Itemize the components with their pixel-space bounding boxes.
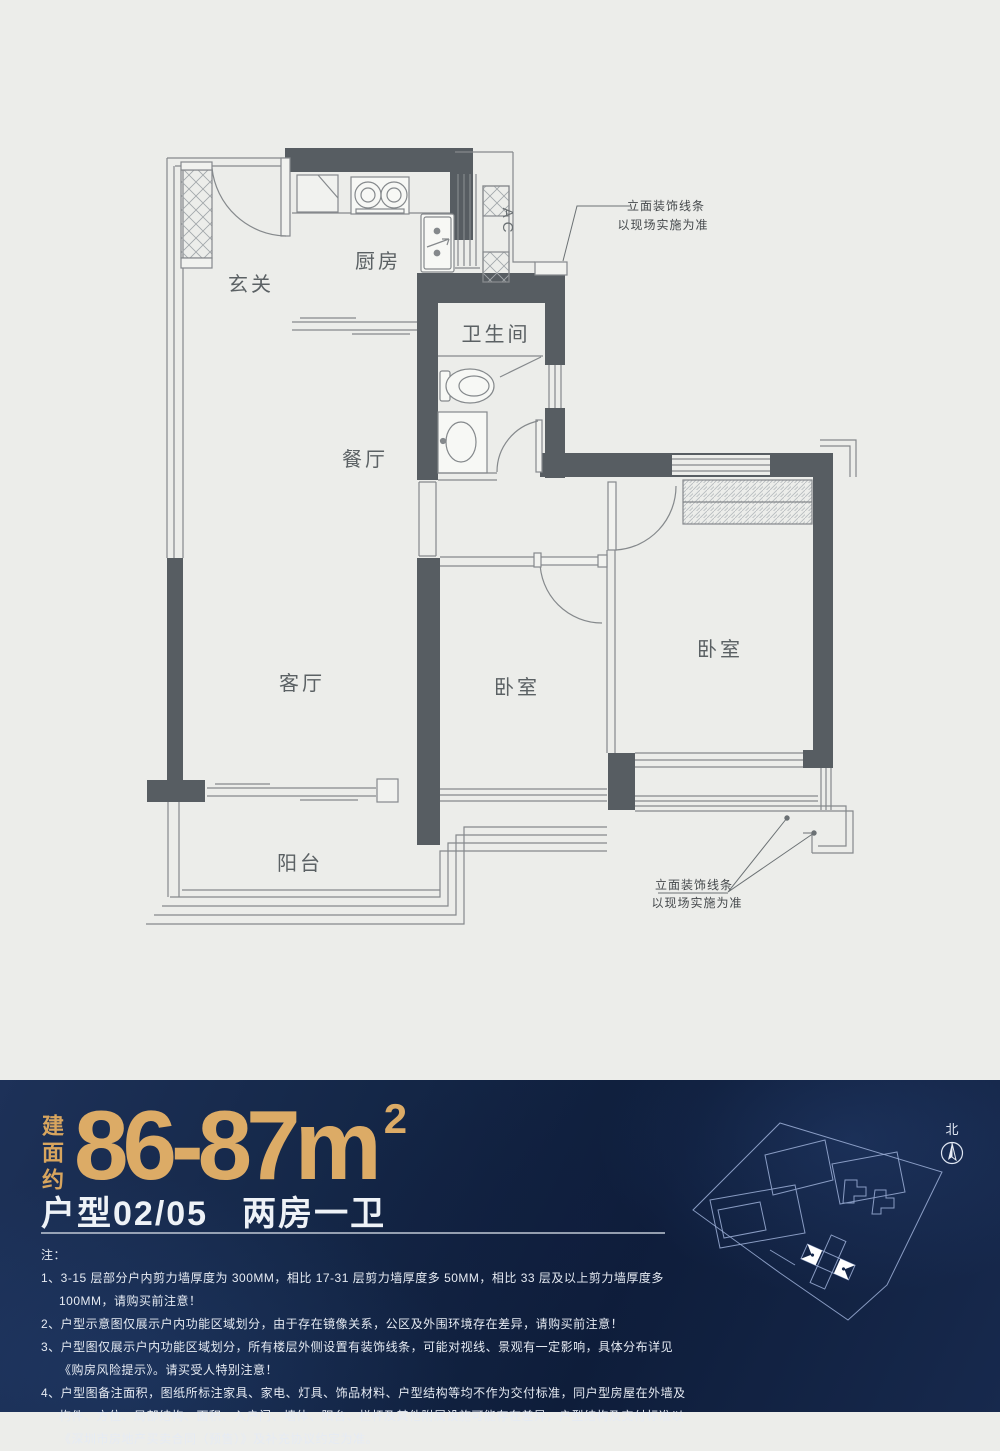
note-item-1: 1、3-15 层部分户内剪力墙厚度为 300MM，相比 17-31 层剪力墙厚度… xyxy=(41,1267,696,1313)
site-plan: 北 xyxy=(680,1098,980,1358)
north-indicator: 北 xyxy=(942,1122,963,1164)
note-item-2: 2、户型示意图仅展示户内功能区域划分，由于存在镜像关系，公区及外围环境存在差异，… xyxy=(41,1313,696,1336)
north-label: 北 xyxy=(945,1122,958,1137)
area-prefix-label: 建面约 xyxy=(40,1114,62,1195)
info-panel: 建面约 86-87m2 户型02/05两房一卫 注： 1、3-15 层部分户内剪… xyxy=(0,1080,1000,1412)
area-value: 86-87m2 xyxy=(74,1096,399,1194)
note-item-3: 3、户型图仅展示户内功能区域划分，所有楼层外侧设置有装饰线条，可能对视线、景观有… xyxy=(41,1336,696,1382)
plan-background xyxy=(0,0,1000,1080)
room-label-bedroom-master: 卧室 xyxy=(697,638,743,661)
room-label-kitchen: 厨房 xyxy=(355,250,401,273)
site-boundary xyxy=(693,1123,942,1320)
area-number: 86-87m xyxy=(74,1090,376,1200)
room-label-foyer: 玄关 xyxy=(228,273,274,296)
site-buildings xyxy=(710,1140,905,1265)
room-label-living: 客厅 xyxy=(279,672,325,695)
divider-line xyxy=(41,1232,665,1234)
room-label-bedroom-small: 卧室 xyxy=(494,676,540,699)
floor-plan: 玄关 厨房 卫生间 餐厅 客厅 卧室 卧室 阳台 AC 立面装饰线条 以现场实施… xyxy=(0,0,1000,1080)
facade-note-top-line2: 以现场实施为准 xyxy=(617,217,708,232)
facade-note-bottom-line2: 以现场实施为准 xyxy=(651,895,742,910)
facade-note-top-line1: 立面装饰线条 xyxy=(627,198,705,213)
facade-note-bottom-line1: 立面装饰线条 xyxy=(655,877,733,892)
north-needle xyxy=(948,1143,952,1160)
room-label-bathroom: 卫生间 xyxy=(462,323,531,346)
unit-code: 户型02/05 xyxy=(41,1195,208,1233)
room-label-dining: 餐厅 xyxy=(342,448,388,471)
room-label-balcony: 阳台 xyxy=(277,852,323,875)
site-highlighted-tower xyxy=(794,1228,863,1297)
ac-shaft-label: AC xyxy=(499,208,516,237)
unit-type-line: 户型02/05两房一卫 xyxy=(41,1186,386,1235)
disclaimer-notes: 注： 1、3-15 层部分户内剪力墙厚度为 300MM，相比 17-31 层剪力… xyxy=(41,1244,696,1451)
unit-layout: 两房一卫 xyxy=(242,1195,386,1233)
note-item-4: 4、户型图备注面积，图纸所标注家具、家电、灯具、饰品材料、户型结构等均不作为交付… xyxy=(41,1382,696,1451)
area-superscript: 2 xyxy=(384,1098,407,1140)
notes-label: 注： xyxy=(41,1244,696,1267)
floorplan-brochure: { "plan": { "rooms": { "foyer": "玄关", "k… xyxy=(0,0,1000,1412)
